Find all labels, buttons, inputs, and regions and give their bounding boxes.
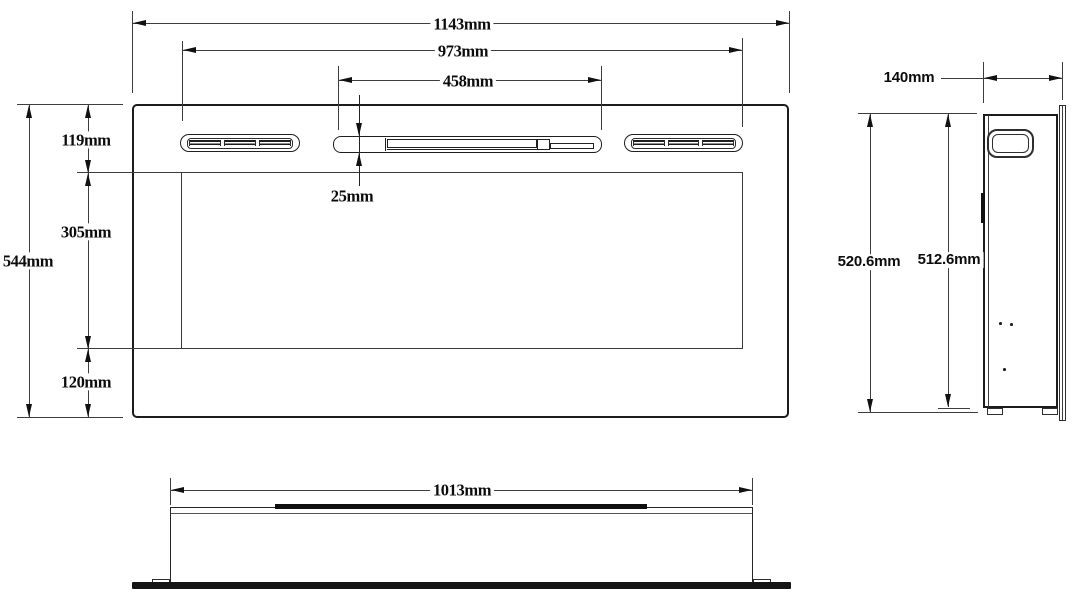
- dim-label-side-overall-height: 520.6mm: [835, 254, 904, 270]
- dim-label-body-height: 512.6mm: [915, 252, 984, 268]
- arrowhead: [739, 487, 752, 493]
- dim-label-depth: 140mm: [881, 70, 938, 86]
- arrowhead: [171, 487, 184, 493]
- dim-label-overall-height: 544mm: [0, 252, 56, 269]
- chassis-top-lip: [275, 504, 647, 509]
- ext-line: [752, 478, 753, 505]
- dim-label-bottom-section: 120mm: [58, 373, 114, 390]
- dim-label-slot-width: 458mm: [440, 72, 496, 89]
- dim-label-grille-span: 973mm: [435, 42, 491, 59]
- dimension-drawing-canvas: 1143mm 973mm 458mm 25mm 544mm: [0, 0, 1073, 602]
- dim-label-window-height: 305mm: [58, 223, 114, 240]
- dim-label-recess-width: 1013mm: [430, 481, 494, 498]
- front-face-plate: [132, 582, 791, 589]
- dim-label-overall-width: 1143mm: [430, 15, 493, 32]
- bottom-chassis: [170, 507, 753, 583]
- dim-label-top-section: 119mm: [58, 131, 113, 148]
- dim-label-slot-height: 25mm: [328, 187, 376, 204]
- chassis-top-seam: [171, 513, 752, 514]
- bottom-view: 1013mm: [0, 0, 1073, 602]
